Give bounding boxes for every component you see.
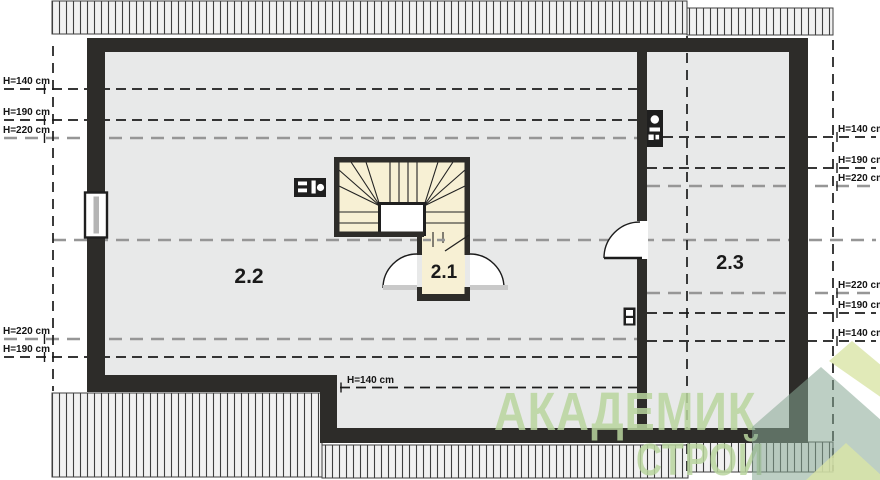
eave-hatch-top-right bbox=[687, 8, 833, 35]
watermark-text-line2: СТРОЙ bbox=[636, 434, 765, 480]
height-label: H=190 cm bbox=[3, 344, 50, 355]
height-label: H=140 cm bbox=[838, 124, 880, 135]
height-label: H=190 cm bbox=[838, 300, 880, 311]
eave-hatch-bottom-left bbox=[52, 393, 322, 477]
eave-hatch-bottom-middle bbox=[322, 445, 688, 478]
flue-vent-icon bbox=[647, 110, 663, 147]
door-threshold bbox=[470, 285, 508, 290]
stairwell-void bbox=[381, 205, 423, 233]
height-label: H=220 cm bbox=[838, 173, 880, 184]
window-icon bbox=[85, 193, 107, 238]
height-label: H=220 cm bbox=[3, 125, 50, 136]
vent-box-icon bbox=[624, 308, 636, 326]
height-label: H=220 cm bbox=[3, 326, 50, 337]
door-threshold bbox=[383, 285, 417, 290]
room-label-2-1: 2.1 bbox=[412, 262, 476, 284]
eave-hatch-top-left bbox=[52, 1, 687, 34]
height-label: H=190 cm bbox=[3, 107, 50, 118]
partition-wall-upper bbox=[637, 52, 647, 222]
height-label: H=140 cm bbox=[838, 328, 880, 339]
height-label: H=140 cm bbox=[3, 76, 50, 87]
attic-floor-plan: H=140 cm H=190 cm H=220 cm H=220 cm H=19… bbox=[0, 0, 880, 480]
height-label-inline: H=140 cm bbox=[347, 375, 394, 386]
room-label-2-3: 2.3 bbox=[698, 252, 762, 275]
height-label: H=220 cm bbox=[838, 280, 880, 291]
room-label-2-2: 2.2 bbox=[217, 265, 281, 289]
flue-stack-icon bbox=[294, 178, 326, 197]
height-label: H=190 cm bbox=[838, 155, 880, 166]
